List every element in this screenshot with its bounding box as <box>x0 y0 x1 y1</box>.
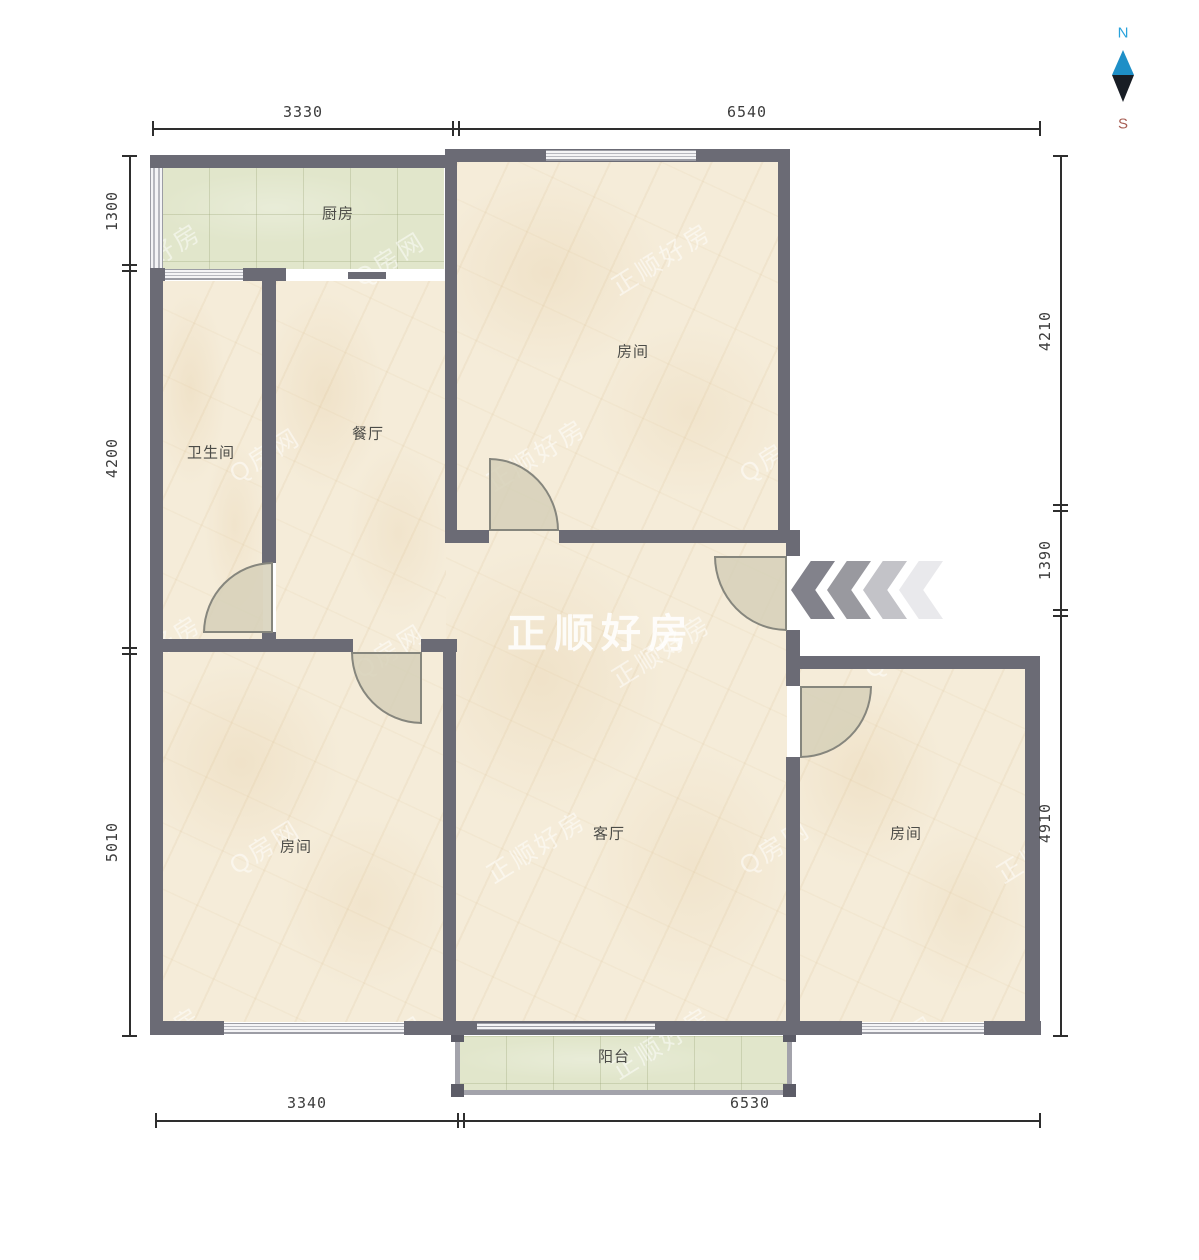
dim-tick <box>122 264 137 266</box>
wall <box>348 272 386 279</box>
dim-tick <box>1053 1035 1068 1037</box>
dim-tick <box>122 1035 137 1037</box>
window <box>546 150 696 161</box>
dimension-label: 3340 <box>287 1094 327 1112</box>
window <box>165 269 243 280</box>
dim-tick <box>122 270 137 272</box>
room-label-balcony: 阳台 <box>598 1046 630 1067</box>
room-label-bedroom-left: 房间 <box>280 836 312 857</box>
watermark-center: 正顺好房 <box>507 601 695 659</box>
dimension-label: 4910 <box>1036 803 1054 843</box>
dimension-line <box>152 128 1040 130</box>
room-label-kitchen: 厨房 <box>322 203 354 224</box>
dim-tick <box>122 155 137 157</box>
window <box>862 1023 984 1034</box>
wall <box>262 632 276 652</box>
dim-tick <box>1053 615 1068 617</box>
dim-tick <box>1053 609 1068 611</box>
wall <box>150 155 457 168</box>
wall <box>150 639 163 1035</box>
dimension-label: 1390 <box>1036 540 1054 580</box>
room-label-bedroom-right: 房间 <box>890 823 922 844</box>
dim-tick <box>1039 121 1041 136</box>
dimension-label: 1300 <box>103 191 121 231</box>
dim-tick <box>155 1113 157 1128</box>
watermark-tile: Q房网 <box>856 222 942 294</box>
dim-tick <box>458 121 460 136</box>
window <box>150 168 163 268</box>
room-label-bathroom: 卫生间 <box>187 442 235 463</box>
room-label-bedroom-top: 房间 <box>617 341 649 362</box>
dimension-line <box>155 1120 1040 1122</box>
dim-tick <box>122 653 137 655</box>
wall <box>778 149 790 543</box>
watermark-tile: 正顺好房 <box>989 409 1103 499</box>
wall <box>786 656 1040 669</box>
dimension-label: 5010 <box>103 822 121 862</box>
dim-tick <box>1053 155 1068 157</box>
wall <box>262 268 276 563</box>
balcony-corner <box>783 1084 796 1097</box>
dim-tick <box>1053 504 1068 506</box>
dimension-line <box>1060 155 1062 1035</box>
wall <box>150 639 353 652</box>
dimension-label: 4200 <box>103 438 121 478</box>
wall <box>786 669 800 686</box>
wall <box>445 149 457 543</box>
dim-tick <box>452 121 454 136</box>
compass-north-label: N <box>1118 25 1129 42</box>
window <box>224 1023 404 1034</box>
entry-direction-chevron <box>899 561 943 619</box>
dim-tick <box>152 121 154 136</box>
wall <box>984 1021 1041 1035</box>
wall <box>443 639 456 1035</box>
wall <box>150 268 163 639</box>
balcony-sliding-door <box>477 1023 655 1030</box>
compass-needle-icon <box>1112 50 1134 75</box>
balcony-corner <box>451 1084 464 1097</box>
floor-plan: 正顺好房Q房网正顺好房Q房网Q房网正顺好房Q房网正顺好房正顺好房Q房网正顺好房Q… <box>0 0 1199 1260</box>
dimension-label: 4210 <box>1036 311 1054 351</box>
compass-south-label: S <box>1118 116 1128 133</box>
room-label-dining: 餐厅 <box>352 423 384 444</box>
dim-tick <box>122 647 137 649</box>
compass-needle-icon <box>1112 75 1134 102</box>
room-floor-kitchen <box>162 167 444 269</box>
wall <box>559 530 790 543</box>
wall <box>786 757 800 1021</box>
dim-tick <box>1039 1113 1041 1128</box>
dimension-label: 6540 <box>727 103 767 121</box>
wall <box>786 630 800 669</box>
dim-tick <box>457 1113 459 1128</box>
wall <box>786 1021 862 1035</box>
dimension-label: 3330 <box>283 103 323 121</box>
dimension-line <box>129 155 131 1035</box>
dimension-label: 6530 <box>730 1094 770 1112</box>
dim-tick <box>463 1113 465 1128</box>
wall <box>786 530 800 556</box>
dim-tick <box>1053 510 1068 512</box>
room-floor-dining <box>276 281 446 652</box>
room-label-living: 客厅 <box>593 823 625 844</box>
